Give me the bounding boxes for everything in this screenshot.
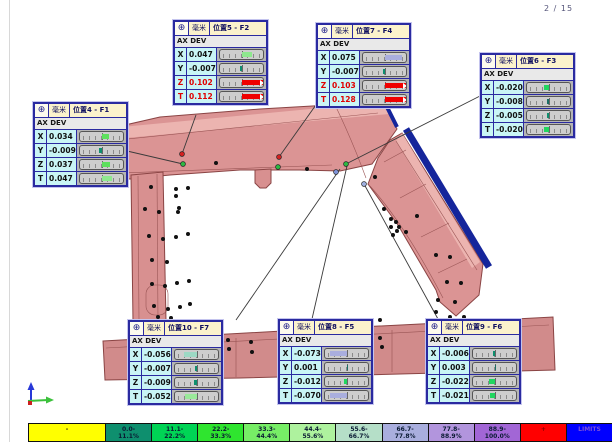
deviation-value: -0.070 [292, 389, 322, 402]
unit-label: 毫米 [442, 321, 463, 334]
deviation-callout[interactable]: ⊕ 毫米 位置9 - F6 AX DEV X -0.006 Y 0.003 Z … [426, 319, 521, 404]
deviation-bar [77, 158, 126, 171]
axis-label: Z [280, 375, 292, 388]
deviation-bar [322, 361, 371, 374]
deviation-callout[interactable]: ⊕ 毫米 位置4 - F1 AX DEV X 0.034 Y -0.009 Z … [33, 102, 128, 187]
unit-label: 毫米 [332, 25, 353, 38]
axis-label: T [280, 389, 292, 402]
deviation-callout[interactable]: ⊕ 毫米 位置8 - F5 AX DEV X -0.073 Y 0.001 Z … [278, 319, 373, 404]
deviation-row: Z -0.012 [280, 375, 371, 389]
deviation-row: Z 0.103 [318, 79, 409, 93]
bar-center-line [197, 393, 198, 400]
callout-header: ⊕ 毫米 位置8 - F5 [280, 321, 371, 335]
ax-dev-header: AX DEV [428, 335, 519, 347]
deviation-row: T -0.021 [428, 389, 519, 402]
bar-center-line [242, 65, 243, 72]
ax-dev-header: AX DEV [280, 335, 371, 347]
deviation-bar [524, 109, 573, 122]
deviation-row: Z 0.037 [35, 158, 126, 172]
bar-fill [493, 351, 495, 356]
bar-center-line [197, 351, 198, 358]
axis-label: Y [175, 62, 187, 75]
axis-label: Z [175, 76, 187, 89]
deviation-row: T 0.047 [35, 172, 126, 185]
callout-title: 位置9 - F6 [463, 321, 519, 334]
unit-label: 毫米 [189, 22, 210, 35]
deviation-value: -0.007 [330, 65, 360, 78]
bar-fill [102, 162, 111, 167]
bar-center-line [347, 350, 348, 357]
bar-center-line [495, 392, 496, 399]
deviation-bar [217, 48, 266, 61]
deviation-value: 0.001 [292, 361, 322, 374]
deviation-bar [470, 347, 519, 360]
deviation-bar [172, 348, 221, 361]
bar-fill [195, 366, 197, 371]
bar-fill [547, 113, 549, 118]
deviation-value: -0.052 [142, 390, 172, 403]
deviation-bar [322, 347, 371, 360]
deviation-value: 0.128 [330, 93, 360, 106]
bar-fill [544, 127, 549, 132]
bar-fill [490, 393, 495, 398]
deviation-value: -0.020 [494, 81, 524, 94]
crosshair-icon[interactable]: ⊕ [35, 104, 49, 117]
bar-center-line [102, 147, 103, 154]
deviation-row: X 0.034 [35, 130, 126, 144]
deviation-row: X -0.073 [280, 347, 371, 361]
bar-fill [242, 94, 265, 99]
deviation-bar [360, 79, 409, 92]
bar-fill [184, 352, 197, 357]
bar-fill [242, 80, 265, 85]
deviation-value: -0.022 [440, 375, 470, 388]
axis-label: X [280, 347, 292, 360]
axis-label: X [130, 348, 142, 361]
deviation-bar [470, 361, 519, 374]
deviation-value: -0.006 [440, 347, 470, 360]
deviation-row: Z 0.102 [175, 76, 266, 90]
deviation-callout[interactable]: ⊕ 毫米 位置6 - F3 AX DEV X -0.020 Y -0.008 Z… [480, 53, 575, 138]
callout-header: ⊕ 毫米 位置6 - F3 [482, 55, 573, 69]
deviation-value: 0.003 [440, 361, 470, 374]
bar-fill [102, 134, 110, 139]
axis-label: T [428, 389, 440, 402]
crosshair-icon[interactable]: ⊕ [428, 321, 442, 334]
deviation-value: -0.007 [187, 62, 217, 75]
ax-dev-header: AX DEV [318, 39, 409, 51]
deviation-row: Y -0.009 [35, 144, 126, 158]
deviation-bar [470, 389, 519, 402]
metrology-report-viewport[interactable]: 2 / 15 ⊕ 毫米 位置5 - F2 AX DEV X 0.047 Y -0… [0, 0, 612, 442]
deviation-bar [360, 93, 409, 106]
deviation-row: Y 0.003 [428, 361, 519, 375]
bar-center-line [549, 84, 550, 91]
crosshair-icon[interactable]: ⊕ [318, 25, 332, 38]
deviation-value: -0.005 [494, 109, 524, 122]
deviation-value: -0.009 [142, 376, 172, 389]
axis-label: X [482, 81, 494, 94]
crosshair-icon[interactable]: ⊕ [175, 22, 189, 35]
axis-label: Z [482, 109, 494, 122]
deviation-row: Y -0.007 [130, 362, 221, 376]
bar-fill [385, 55, 402, 60]
bar-center-line [347, 378, 348, 385]
bar-fill [102, 176, 113, 181]
deviation-bar [360, 65, 409, 78]
axis-label: Y [280, 361, 292, 374]
deviation-value: -0.012 [292, 375, 322, 388]
deviation-row: Y -0.008 [482, 95, 573, 109]
deviation-bar [172, 362, 221, 375]
bar-center-line [347, 392, 348, 399]
deviation-bar [524, 123, 573, 136]
unit-label: 毫米 [144, 322, 165, 335]
deviation-value: -0.020 [494, 123, 524, 136]
axis-label: T [35, 172, 47, 185]
unit-label: 毫米 [496, 55, 517, 68]
callout-title: 位置5 - F2 [210, 22, 266, 35]
deviation-value: -0.007 [142, 362, 172, 375]
deviation-bar [217, 90, 266, 103]
crosshair-icon[interactable]: ⊕ [130, 322, 144, 335]
deviation-callout[interactable]: ⊕ 毫米 位置10 - F7 AX DEV X -0.056 Y -0.007 … [128, 320, 223, 405]
axis-label: Z [318, 79, 330, 92]
deviation-bar [470, 375, 519, 388]
deviation-bar [360, 51, 409, 64]
deviation-row: X 0.047 [175, 48, 266, 62]
axis-label: X [428, 347, 440, 360]
axis-label: Z [35, 158, 47, 171]
callout-title: 位置7 - F4 [353, 25, 409, 38]
deviation-value: -0.009 [47, 144, 77, 157]
deviation-value: 0.037 [47, 158, 77, 171]
deviation-bar [217, 62, 266, 75]
callout-title: 位置10 - F7 [165, 322, 221, 335]
deviation-bar [322, 375, 371, 388]
deviation-row: X -0.006 [428, 347, 519, 361]
bar-fill [99, 148, 101, 153]
bar-fill [344, 379, 347, 384]
callout-title: 位置6 - F3 [517, 55, 573, 68]
bar-fill [185, 394, 197, 399]
deviation-value: 0.034 [47, 130, 77, 143]
deviation-bar [172, 376, 221, 389]
bar-center-line [549, 126, 550, 133]
bar-center-line [197, 379, 198, 386]
deviation-callout[interactable]: ⊕ 毫米 位置7 - F4 AX DEV X 0.075 Y -0.007 Z … [316, 23, 411, 108]
bar-fill [383, 69, 385, 74]
callout-title: 位置8 - F5 [315, 321, 371, 334]
callout-header: ⊕ 毫米 位置5 - F2 [175, 22, 266, 36]
callout-header: ⊕ 毫米 位置7 - F4 [318, 25, 409, 39]
unit-label: 毫米 [49, 104, 70, 117]
deviation-row: X -0.020 [482, 81, 573, 95]
deviation-value: 0.102 [187, 76, 217, 89]
axis-label: X [35, 130, 47, 143]
crosshair-icon[interactable]: ⊕ [482, 55, 496, 68]
axis-label: T [318, 93, 330, 106]
deviation-bar [77, 130, 126, 143]
deviation-bar [77, 144, 126, 157]
deviation-value: -0.073 [292, 347, 322, 360]
deviation-value: 0.075 [330, 51, 360, 64]
axis-label: T [482, 123, 494, 136]
bar-center-line [197, 365, 198, 372]
bar-fill [242, 52, 253, 57]
deviation-value: 0.103 [330, 79, 360, 92]
bar-fill [495, 365, 497, 370]
axis-label: T [130, 390, 142, 403]
deviation-bar [322, 389, 371, 402]
unit-label: 毫米 [294, 321, 315, 334]
deviation-value: -0.021 [440, 389, 470, 402]
deviation-bar [524, 95, 573, 108]
deviation-row: T -0.070 [280, 389, 371, 402]
deviation-row: Y -0.007 [318, 65, 409, 79]
deviation-row: T -0.020 [482, 123, 573, 136]
callout-title: 位置4 - F1 [70, 104, 126, 117]
ax-dev-header: AX DEV [35, 118, 126, 130]
deviation-row: Y -0.007 [175, 62, 266, 76]
ax-dev-header: AX DEV [130, 336, 221, 348]
bar-fill [544, 85, 549, 90]
axis-label: Y [482, 95, 494, 108]
deviation-row: T 0.112 [175, 90, 266, 103]
axis-label: Z [130, 376, 142, 389]
deviation-row: T -0.052 [130, 390, 221, 403]
deviation-row: X -0.056 [130, 348, 221, 362]
deviation-value: 0.047 [47, 172, 77, 185]
ax-dev-header: AX DEV [482, 69, 573, 81]
deviation-row: Y 0.001 [280, 361, 371, 375]
bar-fill [547, 99, 549, 104]
axis-label: Y [35, 144, 47, 157]
deviation-bar [172, 390, 221, 403]
deviation-row: Z -0.009 [130, 376, 221, 390]
deviation-bar [77, 172, 126, 185]
callout-layer: ⊕ 毫米 位置5 - F2 AX DEV X 0.047 Y -0.007 Z … [0, 0, 612, 442]
deviation-value: 0.112 [187, 90, 217, 103]
callout-header: ⊕ 毫米 位置9 - F6 [428, 321, 519, 335]
axis-label: Y [428, 361, 440, 374]
deviation-value: 0.047 [187, 48, 217, 61]
deviation-row: T 0.128 [318, 93, 409, 106]
deviation-value: -0.056 [142, 348, 172, 361]
bar-fill [385, 83, 408, 88]
callout-header: ⊕ 毫米 位置10 - F7 [130, 322, 221, 336]
axis-label: X [175, 48, 187, 61]
axis-label: Y [318, 65, 330, 78]
bar-fill [240, 66, 242, 71]
deviation-value: -0.008 [494, 95, 524, 108]
bar-fill [489, 379, 494, 384]
bar-center-line [495, 350, 496, 357]
axis-label: Y [130, 362, 142, 375]
deviation-bar [217, 76, 266, 89]
axis-label: X [318, 51, 330, 64]
bar-center-line [495, 378, 496, 385]
bar-center-line [385, 68, 386, 75]
deviation-callout[interactable]: ⊕ 毫米 位置5 - F2 AX DEV X 0.047 Y -0.007 Z … [173, 20, 268, 105]
axis-label: T [175, 90, 187, 103]
bar-fill [330, 351, 347, 356]
deviation-row: X 0.075 [318, 51, 409, 65]
axis-label: Z [428, 375, 440, 388]
deviation-row: Z -0.005 [482, 109, 573, 123]
crosshair-icon[interactable]: ⊕ [280, 321, 294, 334]
deviation-bar [524, 81, 573, 94]
ax-dev-header: AX DEV [175, 36, 266, 48]
bar-fill [385, 97, 408, 102]
bar-center-line [549, 112, 550, 119]
bar-center-line [549, 98, 550, 105]
bar-fill [194, 380, 196, 385]
deviation-row: Z -0.022 [428, 375, 519, 389]
bar-fill [347, 365, 349, 370]
bar-fill [330, 393, 346, 398]
callout-header: ⊕ 毫米 位置4 - F1 [35, 104, 126, 118]
